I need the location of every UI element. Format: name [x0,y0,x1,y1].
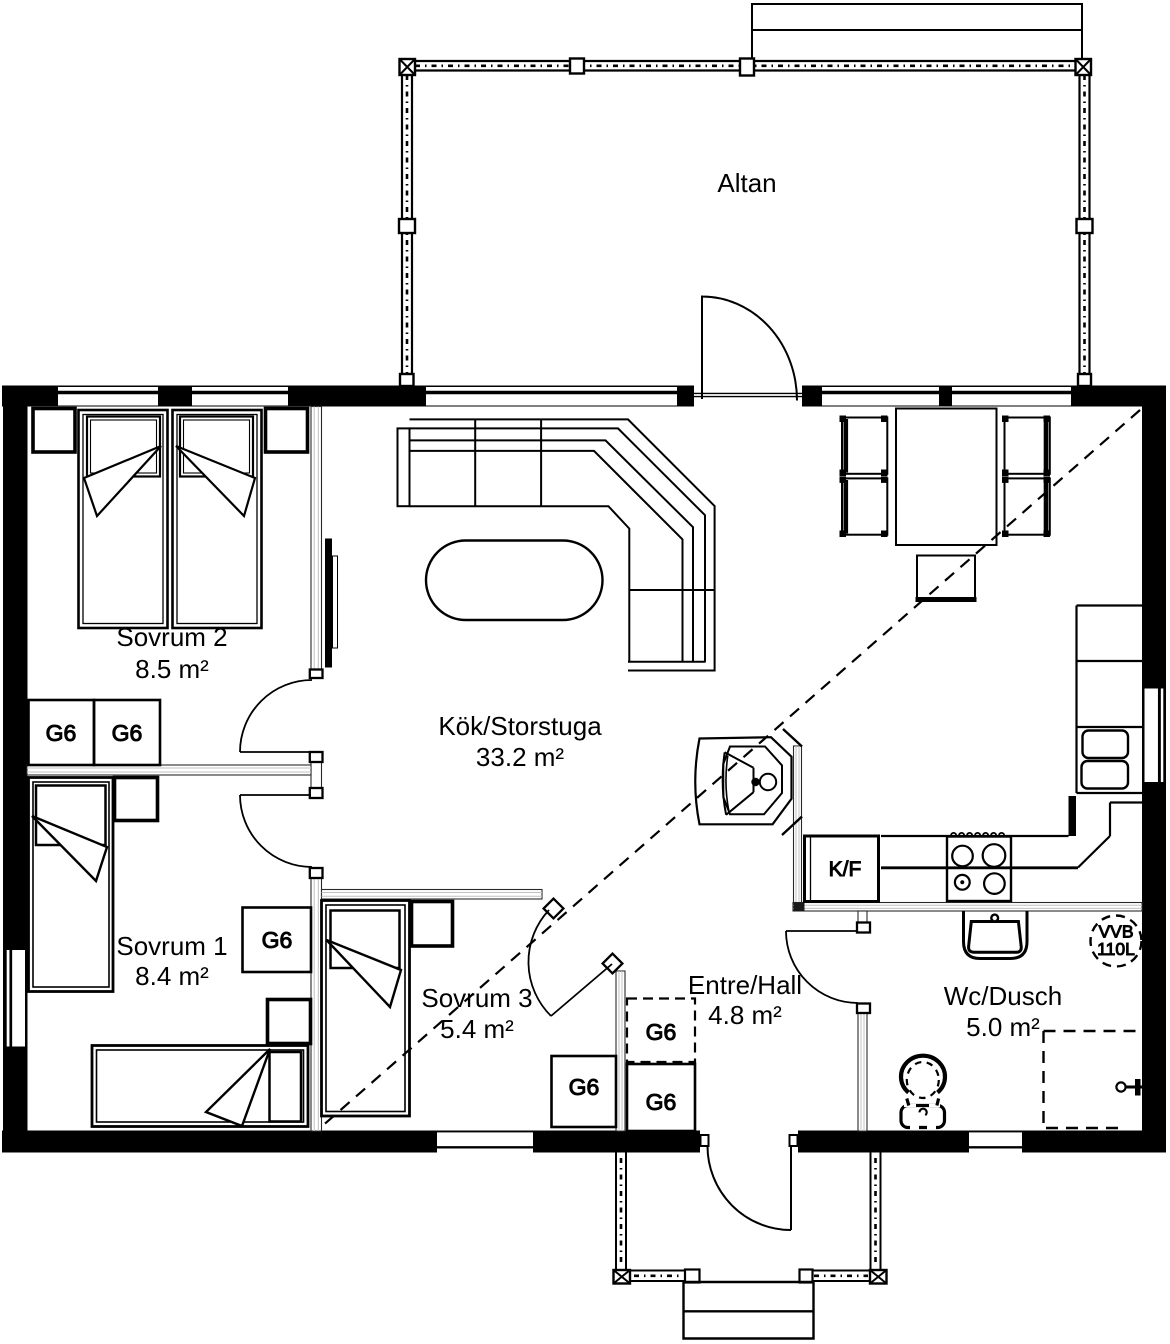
svg-text:5.0 m²: 5.0 m² [966,1012,1040,1042]
svg-text:Sovrum 3: Sovrum 3 [421,983,532,1013]
svg-text:Entre/Hall: Entre/Hall [688,970,802,1000]
svg-text:33.2 m²: 33.2 m² [476,742,564,772]
svg-text:Sovrum 1: Sovrum 1 [116,931,227,961]
svg-text:G6: G6 [646,1019,677,1045]
svg-text:G6: G6 [46,720,77,746]
svg-text:Wc/Dusch: Wc/Dusch [944,981,1062,1011]
svg-text:8.5 m²: 8.5 m² [135,654,209,684]
svg-text:G6: G6 [262,927,293,953]
svg-text:G6: G6 [112,720,143,746]
svg-text:Kök/Storstuga: Kök/Storstuga [438,711,602,741]
svg-text:K/F: K/F [829,858,862,881]
svg-text:110L: 110L [1097,939,1135,959]
svg-text:8.4 m²: 8.4 m² [135,961,209,991]
svg-text:G6: G6 [646,1089,677,1115]
svg-text:5.4 m²: 5.4 m² [440,1014,514,1044]
svg-text:4.8 m²: 4.8 m² [708,1000,782,1030]
svg-text:Altan: Altan [717,168,776,198]
svg-text:G6: G6 [569,1074,600,1100]
